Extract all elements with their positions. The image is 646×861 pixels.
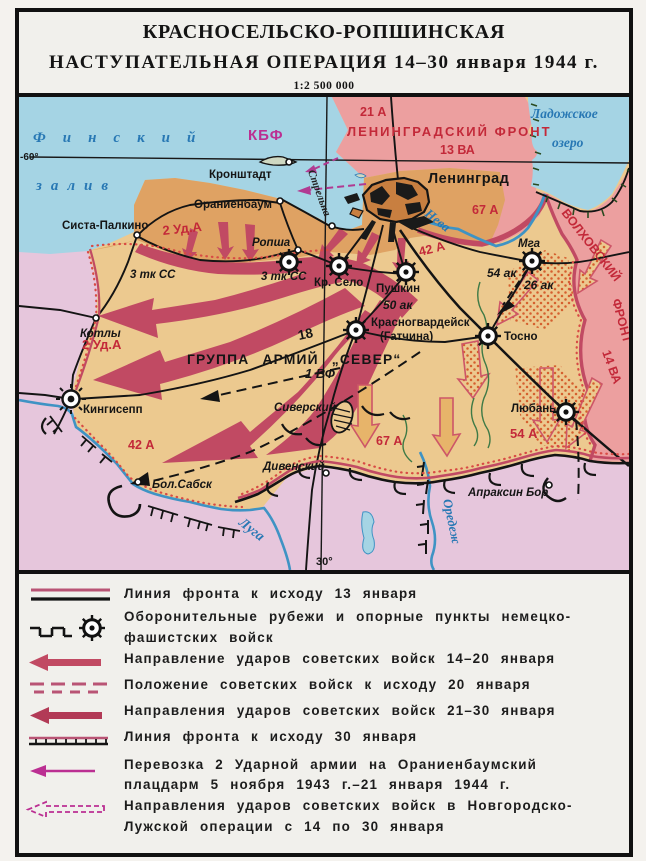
svg-text:Ладожское: Ладожское xyxy=(530,106,598,121)
svg-text:Тосно: Тосно xyxy=(504,331,538,343)
svg-text:Апраксин Бор: Апраксин Бор xyxy=(467,487,548,499)
svg-text:Кронштадт: Кронштадт xyxy=(209,169,272,181)
svg-text:Любань: Любань xyxy=(511,403,556,415)
svg-text:Перевозка 2 Ударной армии: Перевозка 2 Ударной армии на Ораниенбаум… xyxy=(124,757,537,772)
svg-text:Систа-Палкино: Систа-Палкино xyxy=(62,220,148,232)
svg-text:Финский: Финский xyxy=(33,130,212,146)
svg-text:67 А: 67 А xyxy=(376,434,402,448)
svg-text:Направления ударов советских: Направления ударов советских войск в Нов… xyxy=(124,798,573,813)
svg-text:КБФ: КБФ xyxy=(248,127,284,144)
svg-text:Линия фронта к исходу 13: Линия фронта к исходу 13 января xyxy=(124,586,417,601)
svg-text:3 тк СС: 3 тк СС xyxy=(261,271,307,283)
svg-text:Кр. Село: Кр. Село xyxy=(314,277,363,289)
svg-text:1:2 500 000: 1:2 500 000 xyxy=(293,80,354,92)
svg-text:Мга: Мга xyxy=(518,238,541,250)
svg-text:54 ак: 54 ак xyxy=(487,266,517,280)
svg-text:КРАСНОСЕЛЬСКО-РОПШИНСКАЯ: КРАСНОСЕЛЬСКО-РОПШИНСКАЯ xyxy=(143,21,506,43)
svg-text:30°: 30° xyxy=(316,556,333,568)
svg-text:Ропша: Ропша xyxy=(252,237,291,249)
svg-text:Дивенский: Дивенский xyxy=(262,461,325,473)
svg-text:42 А: 42 А xyxy=(128,438,154,452)
svg-text:54 А: 54 А xyxy=(510,426,538,441)
svg-text:67 А: 67 А xyxy=(472,203,498,217)
svg-text:26 ак: 26 ак xyxy=(523,278,554,292)
svg-text:-60°: -60° xyxy=(20,152,38,163)
svg-text:Бол.Сабск: Бол.Сабск xyxy=(152,479,213,491)
svg-text:Кингисепп: Кингисепп xyxy=(83,404,143,416)
svg-text:1 ВФ: 1 ВФ xyxy=(305,366,336,381)
svg-text:Направление ударов советских: Направление ударов советских войск 14–20… xyxy=(124,651,555,666)
svg-text:(Гатчина): (Гатчина) xyxy=(380,331,433,343)
svg-text:2 Уд.А: 2 Уд.А xyxy=(82,337,122,352)
svg-text:Сиверский: Сиверский xyxy=(274,402,336,414)
svg-text:фашистских войск: фашистских войск xyxy=(124,630,274,645)
svg-text:Пушкин: Пушкин xyxy=(376,283,420,295)
svg-text:21 А: 21 А xyxy=(360,105,386,119)
svg-text:НАСТУПАТЕЛЬНАЯ ОПЕРАЦИЯ 14–30: НАСТУПАТЕЛЬНАЯ ОПЕРАЦИЯ 14–30 января 194… xyxy=(49,52,599,73)
svg-text:Ленинград: Ленинград xyxy=(428,171,509,187)
svg-text:13 ВА: 13 ВА xyxy=(440,143,475,157)
svg-text:Направления ударов советских: Направления ударов советских войск 21–30… xyxy=(124,703,556,718)
svg-text:озеро: озеро xyxy=(552,135,584,150)
svg-text:3 тк СС: 3 тк СС xyxy=(130,269,176,281)
svg-text:ГРУППА АРМИЙ „СЕВЕР“: ГРУППА АРМИЙ „СЕВЕР“ xyxy=(187,350,402,367)
svg-text:плацдарм 5 ноября 1943 г.–2: плацдарм 5 ноября 1943 г.–21 января 1944… xyxy=(124,777,510,792)
svg-text:Ораниенбаум: Ораниенбаум xyxy=(194,199,272,211)
svg-text:ЛЕНИНГРАДСКИЙ ФРОНТ: ЛЕНИНГРАДСКИЙ ФРОНТ xyxy=(347,124,552,139)
svg-text:Красногвардейск: Красногвардейск xyxy=(371,317,470,329)
svg-text:залив: залив xyxy=(35,178,117,194)
svg-text:Лужской операции с 14 по 3: Лужской операции с 14 по 30 января xyxy=(124,819,445,834)
svg-text:50 ак: 50 ак xyxy=(383,298,413,312)
svg-text:Линия фронта к исходу 30: Линия фронта к исходу 30 января xyxy=(124,729,417,744)
svg-text:Положение советских войск к: Положение советских войск к исходу 20 ян… xyxy=(124,677,531,692)
svg-text:Оборонительные рубежи и опо: Оборонительные рубежи и опорные пункты н… xyxy=(124,609,571,624)
